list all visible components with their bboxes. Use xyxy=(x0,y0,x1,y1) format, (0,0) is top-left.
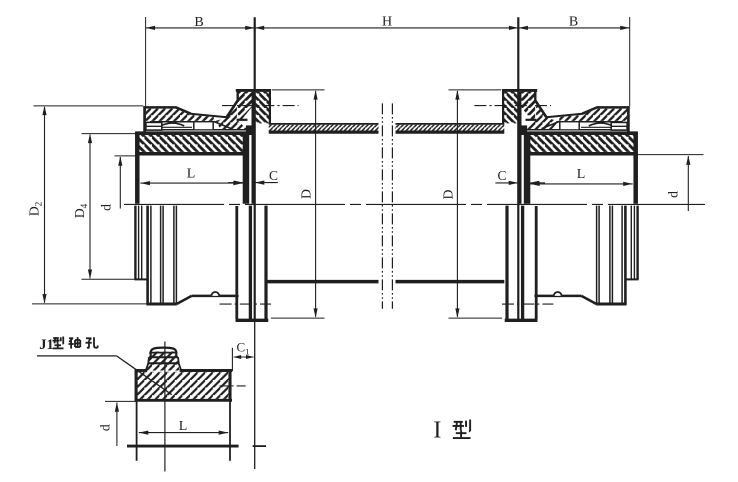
svg-text:J1: J1 xyxy=(39,337,54,353)
svg-text:d: d xyxy=(666,191,681,198)
svg-text:B: B xyxy=(194,15,203,30)
svg-text:D4: D4 xyxy=(72,203,89,218)
svg-text:D: D xyxy=(299,189,314,199)
svg-text:L: L xyxy=(179,419,188,434)
svg-text:H: H xyxy=(382,14,392,29)
svg-text:C: C xyxy=(269,168,278,183)
svg-text:d: d xyxy=(99,204,114,211)
svg-text:D: D xyxy=(440,189,455,199)
svg-text:L: L xyxy=(187,167,196,182)
svg-text:C1: C1 xyxy=(236,340,249,357)
svg-text:L: L xyxy=(577,167,586,182)
svg-text:B: B xyxy=(569,14,578,29)
svg-text:d: d xyxy=(98,424,113,431)
svg-text:C: C xyxy=(497,168,506,183)
svg-text:D2: D2 xyxy=(27,201,44,216)
svg-text:I: I xyxy=(433,418,441,444)
